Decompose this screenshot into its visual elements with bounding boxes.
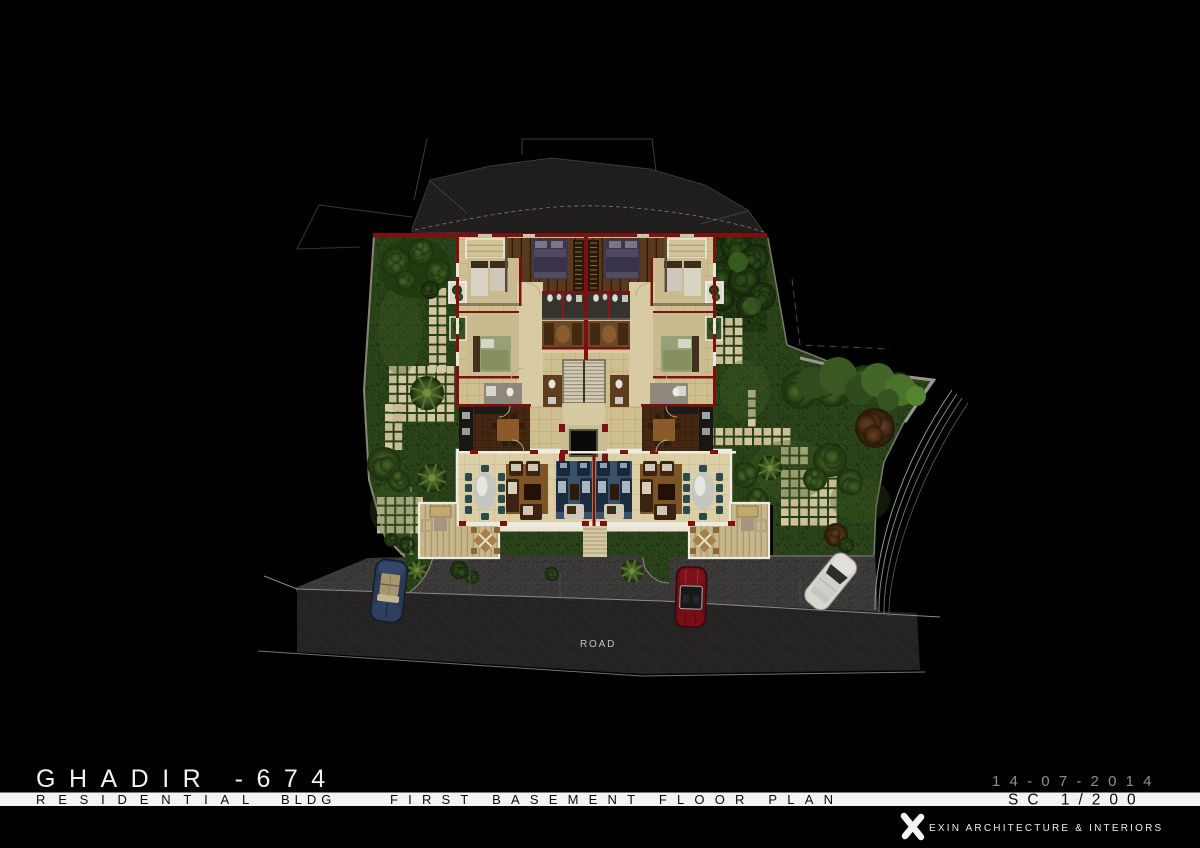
svg-text:EXIN ARCHITECTURE & INTERIORS: EXIN ARCHITECTURE & INTERIORS bbox=[929, 823, 1163, 834]
svg-text:SC 1/200: SC 1/200 bbox=[1008, 792, 1145, 809]
svg-text:GHADIR -674: GHADIR -674 bbox=[36, 765, 339, 793]
svg-text:ROAD: ROAD bbox=[580, 639, 616, 650]
svg-text:14-07-2014: 14-07-2014 bbox=[992, 773, 1161, 790]
svg-text:RESIDENTIAL: RESIDENTIAL bbox=[36, 792, 262, 807]
svg-text:BLDG: BLDG bbox=[281, 792, 336, 807]
svg-text:FIRST BASEMENT FLOOR PLAN: FIRST BASEMENT FLOOR PLAN bbox=[390, 792, 843, 807]
